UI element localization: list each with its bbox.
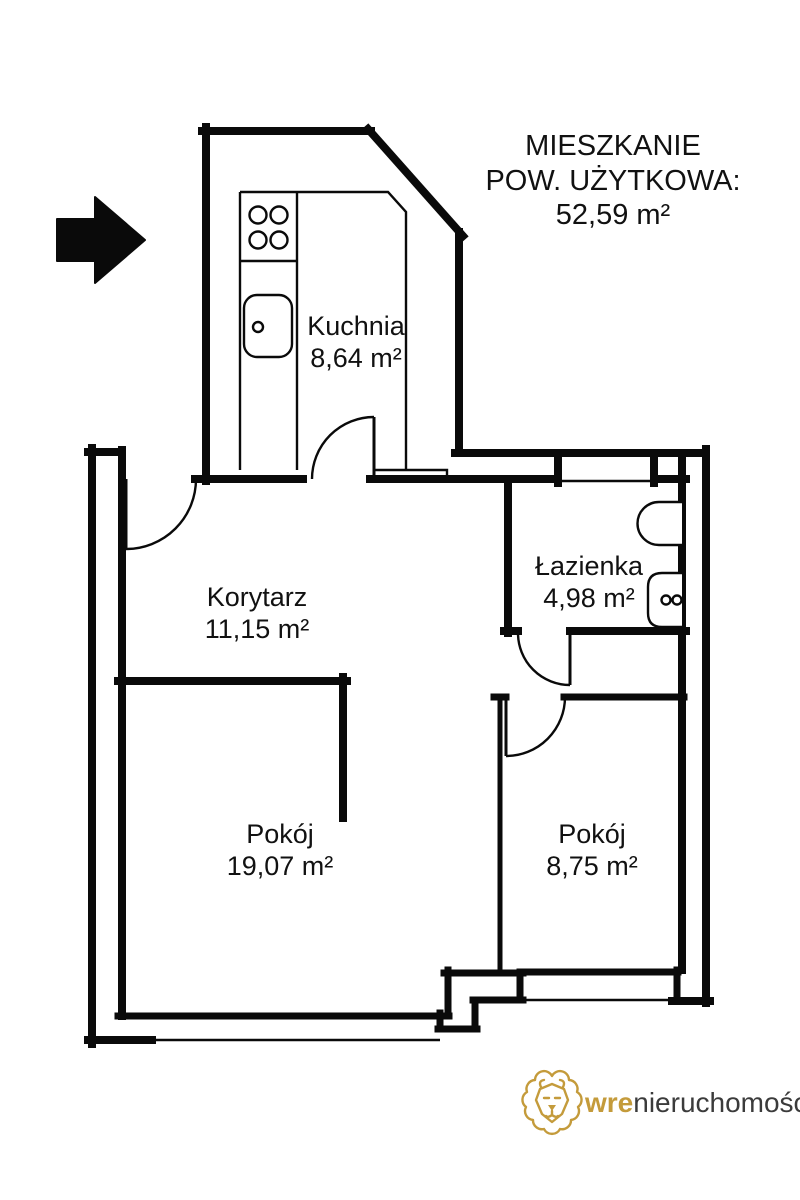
room-name: Kuchnia bbox=[307, 311, 406, 341]
room-label-korytarz: Korytarz 11,15 m² bbox=[205, 582, 310, 644]
bottom-walls bbox=[88, 970, 710, 1040]
room-area: 4,98 m² bbox=[543, 583, 635, 613]
room-name: Pokój bbox=[558, 819, 626, 849]
interior-walls bbox=[118, 453, 686, 970]
stove-icon bbox=[250, 207, 288, 249]
room-area: 8,75 m² bbox=[546, 851, 638, 881]
washbasin-icon bbox=[648, 573, 682, 627]
room-area: 11,15 m² bbox=[205, 614, 310, 644]
title-line2: POW. UŻYTKOWA: bbox=[485, 164, 740, 197]
room-label-lazienka: Łazienka 4,98 m² bbox=[535, 551, 644, 613]
kitchen-door bbox=[312, 417, 374, 479]
bathroom-door bbox=[518, 633, 570, 685]
lion-logo-icon bbox=[522, 1071, 581, 1134]
room-name: Łazienka bbox=[535, 551, 644, 581]
logo: wrenieruchomości bbox=[522, 1071, 800, 1134]
floor-plan-svg: MIESZKANIE POW. UŻYTKOWA: 52,59 m² bbox=[0, 0, 800, 1200]
brand-text: wrenieruchomości bbox=[584, 1087, 800, 1118]
brand-bold: wre bbox=[584, 1087, 633, 1118]
room-label-pokoj-big: Pokój 19,07 m² bbox=[227, 819, 334, 881]
entrance-door bbox=[126, 479, 196, 549]
sink-icon bbox=[244, 295, 292, 357]
room-area: 19,07 m² bbox=[227, 851, 334, 881]
entrance-arrow-icon bbox=[57, 197, 145, 283]
small-room-door bbox=[506, 697, 565, 756]
room-name: Korytarz bbox=[207, 582, 308, 612]
brand-rest: nieruchomości bbox=[633, 1087, 800, 1118]
header-title: MIESZKANIE POW. UŻYTKOWA: 52,59 m² bbox=[485, 130, 740, 231]
room-label-pokoj-small: Pokój 8,75 m² bbox=[546, 819, 638, 881]
title-line1: MIESZKANIE bbox=[525, 130, 701, 162]
room-label-kuchnia: Kuchnia 8,64 m² bbox=[307, 311, 406, 373]
room-name: Pokój bbox=[246, 819, 314, 849]
toilet-icon bbox=[638, 502, 683, 545]
room-area: 8,64 m² bbox=[310, 343, 402, 373]
title-line3: 52,59 m² bbox=[556, 199, 671, 231]
